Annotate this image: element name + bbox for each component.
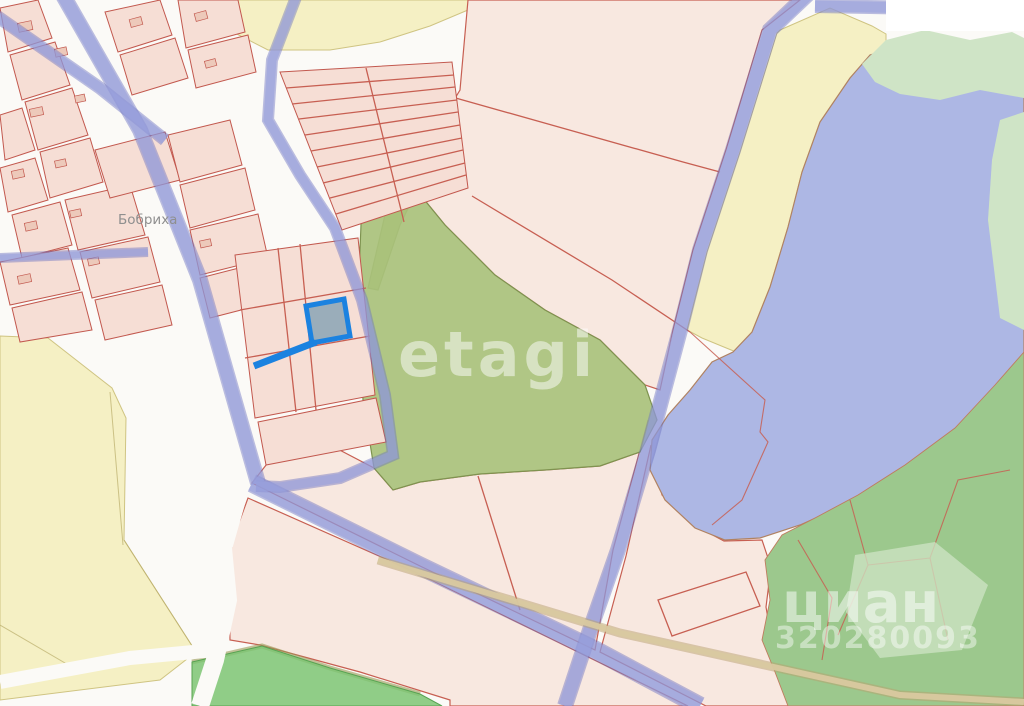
white-patch bbox=[886, 0, 1024, 31]
watermark-etagi: etagi bbox=[398, 318, 597, 391]
place-label: Бобриха bbox=[118, 212, 177, 228]
map-viewport: Бобриха etagi циан 320280093 bbox=[0, 0, 1024, 706]
map-canvas[interactable]: Бобриха etagi циан 320280093 bbox=[0, 0, 1024, 706]
watermark-cian-id: 320280093 bbox=[775, 621, 981, 656]
